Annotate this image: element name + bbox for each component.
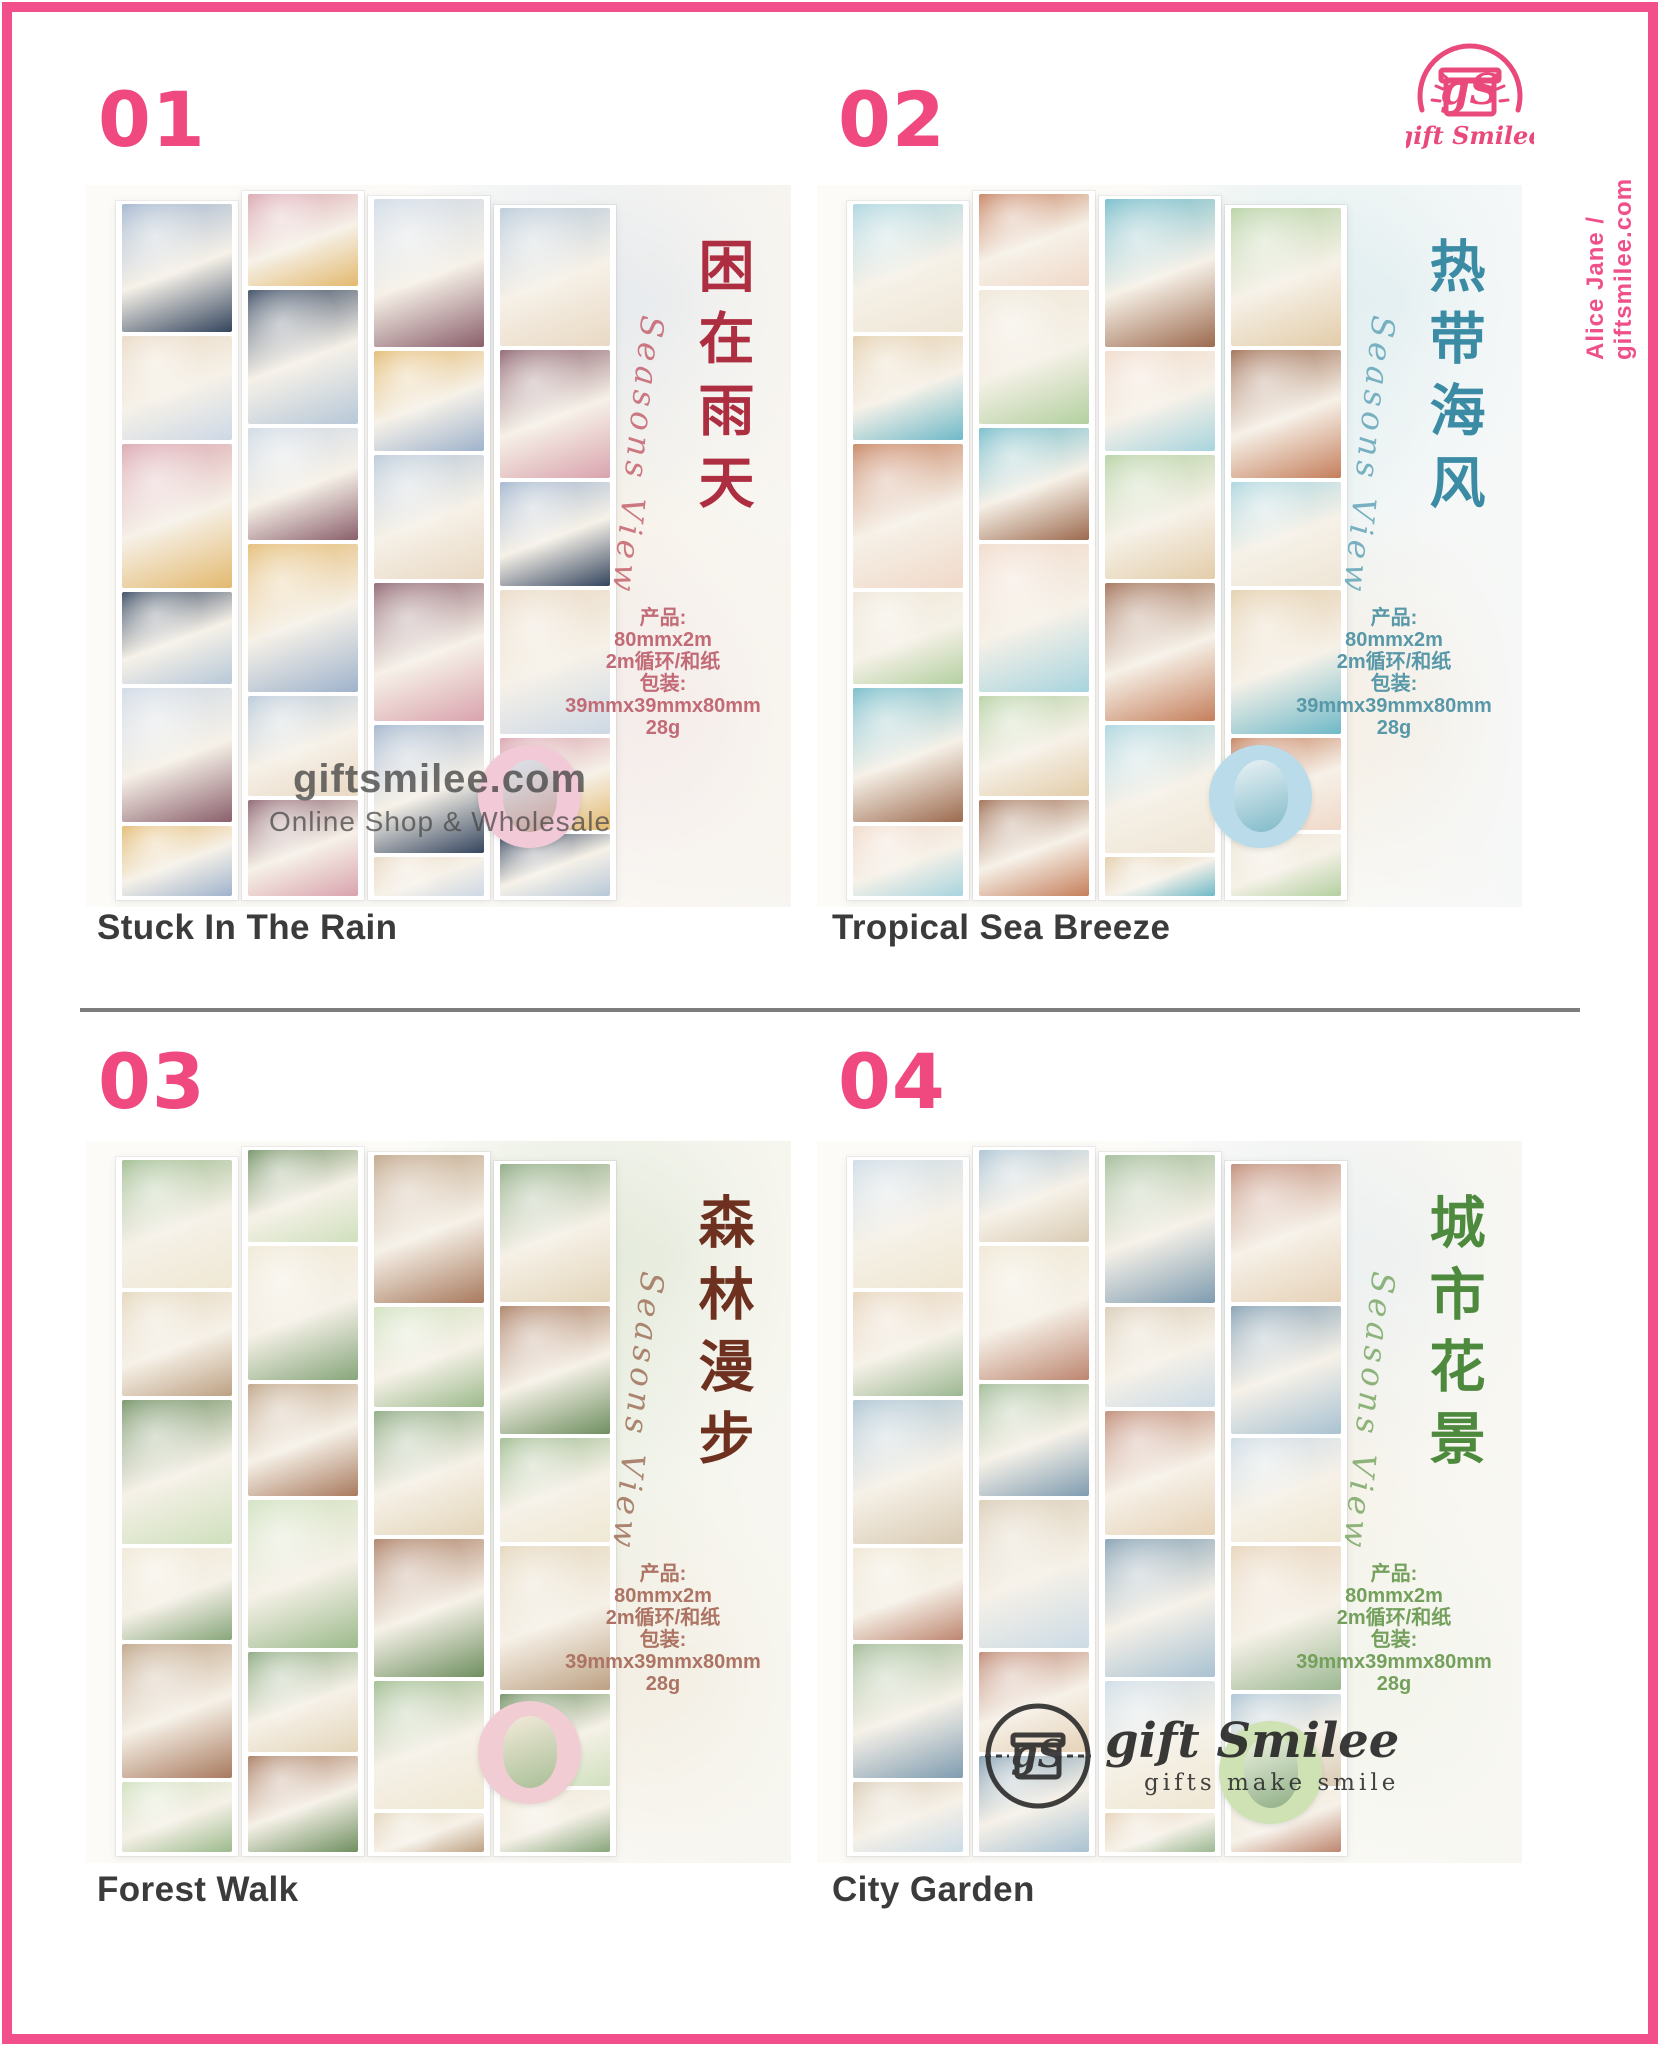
- washi-frame: [374, 1681, 484, 1809]
- washi-strip: [242, 1147, 364, 1856]
- product-specs: 产品: 80mmx2m 2m循环/和纸 包装: 39mmx39mmx80mm 2…: [539, 607, 787, 739]
- product-number: 01: [98, 82, 206, 158]
- product-number: 03: [98, 1044, 206, 1120]
- watermark-brand-text: gift Smilee: [1105, 1716, 1399, 1766]
- washi-tape-strips: [817, 185, 1522, 907]
- washi-frame: [1231, 1306, 1341, 1434]
- washi-frame: [374, 351, 484, 451]
- washi-frame: [979, 194, 1089, 286]
- washi-frame: [248, 1756, 358, 1852]
- spec-material: 2m循环/和纸: [539, 1607, 787, 1629]
- product-number: 02: [838, 82, 946, 158]
- washi-frame: [979, 428, 1089, 540]
- spec-material: 2m循环/和纸: [539, 651, 787, 673]
- watermark-subtitle: Online Shop & Wholesale: [196, 806, 684, 838]
- washi-frame: [853, 1292, 963, 1396]
- brand-logo: gS gift Smilee: [1406, 34, 1534, 157]
- calligraphy-title: 森林漫步: [693, 1193, 749, 1481]
- washi-frame: [1105, 1411, 1215, 1535]
- washi-frame: [374, 1155, 484, 1303]
- washi-frame: [374, 1813, 484, 1852]
- washi-frame: [248, 428, 358, 540]
- washi-strip: [116, 1157, 238, 1856]
- washi-frame: [1105, 1155, 1215, 1303]
- washi-frame: [122, 444, 232, 588]
- washi-frame: [1105, 1539, 1215, 1677]
- product-panel: 城市花景 Seasons View 产品: 80mmx2m 2m循环/和纸 包装…: [817, 1141, 1522, 1863]
- washi-frame: [979, 1384, 1089, 1496]
- product-title: Stuck In The Rain: [97, 908, 397, 948]
- product-number: 04: [838, 1044, 946, 1120]
- washi-frame: [122, 592, 232, 684]
- washi-frame: [979, 696, 1089, 796]
- spec-package-size: 39mmx39mmx80mm: [539, 695, 787, 717]
- product-panel: 森林漫步 Seasons View 产品: 80mmx2m 2m循环/和纸 包装…: [86, 1141, 791, 1863]
- washi-strip: [368, 1152, 490, 1856]
- washi-frame: [853, 1400, 963, 1544]
- gift-box-icon: gS gift Smilee: [1406, 34, 1534, 152]
- washi-frame: [122, 1644, 232, 1778]
- washi-frame: [1105, 725, 1215, 853]
- brand-watermark: gS gift Smilee gifts make smile: [983, 1701, 1399, 1811]
- washi-frame: [1231, 1438, 1341, 1542]
- washi-frame: [1105, 455, 1215, 579]
- brand-watermark-icon: gS: [983, 1701, 1093, 1811]
- washi-strip: [973, 191, 1095, 900]
- washi-frame: [853, 336, 963, 440]
- washi-frame: [1231, 1164, 1341, 1302]
- washi-frame: [500, 1164, 610, 1302]
- calligraphy-title: 城市花景: [1424, 1193, 1480, 1481]
- spec-material: 2m循环/和纸: [1270, 1607, 1518, 1629]
- washi-frame: [979, 800, 1089, 896]
- product-specs: 产品: 80mmx2m 2m循环/和纸 包装: 39mmx39mmx80mm 2…: [1270, 1563, 1518, 1695]
- washi-frame: [248, 1150, 358, 1242]
- washi-frame: [979, 544, 1089, 692]
- spec-product-label: 产品:: [539, 1563, 787, 1585]
- svg-text:gS: gS: [1440, 65, 1500, 114]
- spec-material: 2m循环/和纸: [1270, 651, 1518, 673]
- washi-frame: [248, 290, 358, 424]
- site-watermark: giftsmilee.com Online Shop & Wholesale: [196, 757, 684, 838]
- washi-frame: [853, 592, 963, 684]
- washi-frame: [1231, 482, 1341, 586]
- calligraphy-title: 热带海风: [1424, 237, 1480, 525]
- washi-frame: [853, 444, 963, 588]
- washi-frame: [1105, 199, 1215, 347]
- brand-logo-text: gift Smilee: [1406, 121, 1534, 150]
- washi-frame: [122, 336, 232, 440]
- washi-frame: [374, 1411, 484, 1535]
- washi-frame: [853, 1782, 963, 1852]
- product-title: Forest Walk: [97, 1870, 298, 1910]
- washi-frame: [979, 1246, 1089, 1380]
- washi-frame: [1231, 350, 1341, 478]
- washi-frame: [122, 204, 232, 332]
- spec-packaging-label: 包装:: [1270, 673, 1518, 695]
- washi-frame: [122, 1160, 232, 1288]
- washi-frame: [122, 1782, 232, 1852]
- washi-strip: [847, 201, 969, 900]
- round-sticker: [1209, 745, 1312, 848]
- spec-package-size: 39mmx39mmx80mm: [1270, 695, 1518, 717]
- washi-frame: [500, 208, 610, 346]
- spec-weight: 28g: [1270, 717, 1518, 739]
- washi-frame: [248, 1384, 358, 1496]
- spec-product-label: 产品:: [539, 607, 787, 629]
- product-specs: 产品: 80mmx2m 2m循环/和纸 包装: 39mmx39mmx80mm 2…: [539, 1563, 787, 1695]
- svg-text:gS: gS: [1011, 1731, 1065, 1776]
- product-title: City Garden: [832, 1870, 1035, 1910]
- washi-frame: [500, 1438, 610, 1542]
- product-title: Tropical Sea Breeze: [832, 908, 1170, 948]
- row-divider: [80, 1008, 1580, 1012]
- washi-frame: [979, 1150, 1089, 1242]
- watermark-tagline: gifts make smile: [1105, 1770, 1399, 1796]
- spec-weight: 28g: [539, 717, 787, 739]
- washi-frame: [374, 1307, 484, 1407]
- washi-frame: [853, 1160, 963, 1288]
- washi-frame: [853, 204, 963, 332]
- spec-weight: 28g: [539, 1673, 787, 1695]
- spec-product-label: 产品:: [1270, 1563, 1518, 1585]
- sticker-artwork: [503, 1716, 557, 1788]
- watermark-domain: giftsmilee.com: [196, 757, 684, 802]
- washi-frame: [979, 1500, 1089, 1648]
- spec-package-size: 39mmx39mmx80mm: [1270, 1651, 1518, 1673]
- washi-tape-strips: [86, 1141, 791, 1863]
- spec-package-size: 39mmx39mmx80mm: [539, 1651, 787, 1673]
- washi-frame: [374, 199, 484, 347]
- spec-product-label: 产品:: [1270, 607, 1518, 629]
- product-panel: 困在雨天 Seasons View 产品: 80mmx2m 2m循环/和纸 包装…: [86, 185, 791, 907]
- washi-frame: [853, 1548, 963, 1640]
- washi-frame: [248, 1500, 358, 1648]
- washi-frame: [122, 1400, 232, 1544]
- spec-tape-size: 80mmx2m: [1270, 629, 1518, 651]
- washi-frame: [500, 482, 610, 586]
- washi-frame: [248, 194, 358, 286]
- spec-packaging-label: 包装:: [539, 673, 787, 695]
- washi-frame: [374, 455, 484, 579]
- spec-weight: 28g: [1270, 1673, 1518, 1695]
- spec-tape-size: 80mmx2m: [539, 1585, 787, 1607]
- washi-frame: [248, 544, 358, 692]
- washi-frame: [1105, 583, 1215, 721]
- round-sticker: [478, 1701, 581, 1804]
- washi-frame: [853, 1644, 963, 1778]
- washi-frame: [853, 826, 963, 896]
- spec-packaging-label: 包装:: [539, 1629, 787, 1651]
- washi-frame: [374, 1539, 484, 1677]
- washi-frame: [1105, 1813, 1215, 1852]
- washi-frame: [374, 857, 484, 896]
- spec-tape-size: 80mmx2m: [1270, 1585, 1518, 1607]
- washi-frame: [853, 688, 963, 822]
- washi-frame: [1105, 857, 1215, 896]
- side-credit: Alice Jane / giftsmilee.com: [1582, 50, 1638, 360]
- washi-strip: [847, 1157, 969, 1856]
- washi-frame: [500, 350, 610, 478]
- product-panel: 热带海风 Seasons View 产品: 80mmx2m 2m循环/和纸 包装…: [817, 185, 1522, 907]
- spec-tape-size: 80mmx2m: [539, 629, 787, 651]
- washi-frame: [500, 1306, 610, 1434]
- product-specs: 产品: 80mmx2m 2m循环/和纸 包装: 39mmx39mmx80mm 2…: [1270, 607, 1518, 739]
- spec-packaging-label: 包装:: [1270, 1629, 1518, 1651]
- washi-frame: [1105, 351, 1215, 451]
- washi-strip: [1099, 196, 1221, 900]
- washi-frame: [248, 1246, 358, 1380]
- washi-frame: [122, 1548, 232, 1640]
- washi-frame: [979, 290, 1089, 424]
- washi-frame: [374, 583, 484, 721]
- washi-frame: [248, 1652, 358, 1752]
- washi-frame: [122, 1292, 232, 1396]
- washi-frame: [1231, 208, 1341, 346]
- sticker-artwork: [1234, 760, 1288, 832]
- calligraphy-title: 困在雨天: [693, 237, 749, 525]
- washi-frame: [1105, 1307, 1215, 1407]
